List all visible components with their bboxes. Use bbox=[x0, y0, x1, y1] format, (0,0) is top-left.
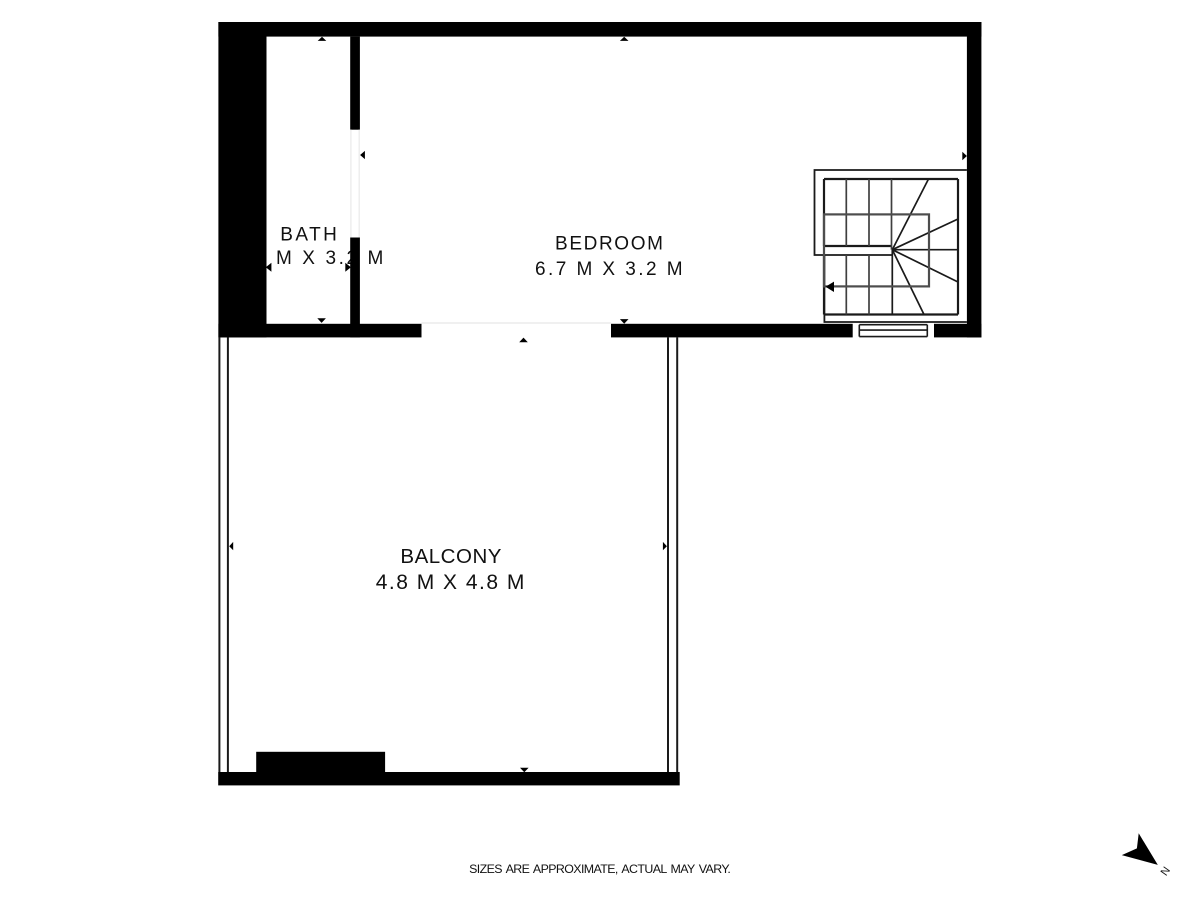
svg-text:BATH: BATH bbox=[280, 225, 339, 246]
svg-text:BALCONY: BALCONY bbox=[400, 545, 502, 568]
svg-text:4.8 M X 4.8 M: 4.8 M X 4.8 M bbox=[376, 571, 526, 594]
svg-text:M X 3.2 M: M X 3.2 M bbox=[276, 248, 386, 269]
svg-text:SIZES ARE APPROXIMATE, ACTUAL: SIZES ARE APPROXIMATE, ACTUAL MAY VARY. bbox=[469, 862, 730, 876]
svg-text:BEDROOM: BEDROOM bbox=[555, 233, 665, 254]
svg-text:6.7 M X 3.2 M: 6.7 M X 3.2 M bbox=[535, 259, 685, 280]
